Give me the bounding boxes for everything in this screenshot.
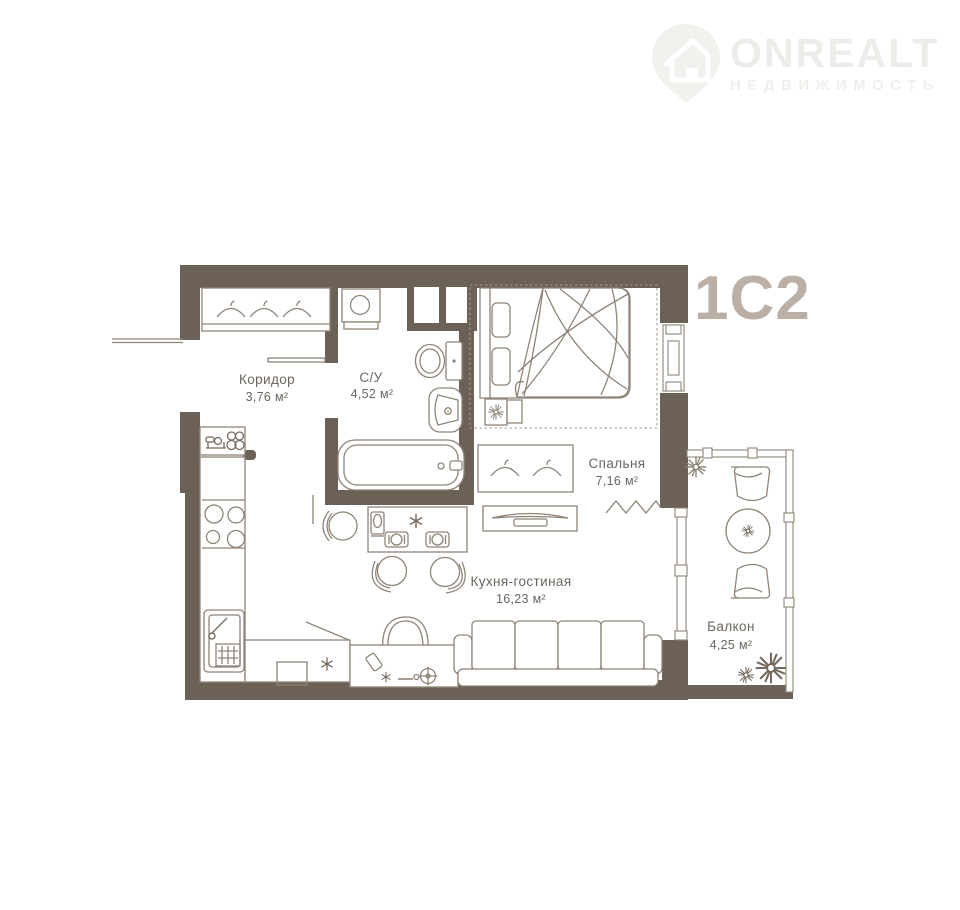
- closet-front-line: [268, 358, 325, 362]
- floorplan-page: ONREALT НЕДВИЖИМОСТЬ: [0, 0, 960, 910]
- bedroom-window: [660, 323, 688, 393]
- toilet: [416, 342, 463, 380]
- kitchen-sink: [204, 610, 244, 672]
- room-label-bedroom: Спальня: [588, 456, 645, 471]
- room-area-bedroom: 7,16 м²: [596, 474, 639, 488]
- bedside-stool: [485, 399, 522, 425]
- living-wardrobe: [478, 445, 573, 492]
- sofa: [454, 621, 662, 686]
- balcony-door: [675, 508, 687, 640]
- room-label-hallway: Коридор: [239, 372, 295, 387]
- room-area-hallway: 3,76 м²: [246, 390, 289, 404]
- room-label-kitchen-living: Кухня-гостиная: [470, 574, 571, 589]
- bathroom-sink: [429, 388, 462, 432]
- hallway-wardrobe: [202, 288, 330, 331]
- bathtub: [338, 440, 464, 490]
- room-area-kitchen-living: 16,23 м²: [496, 592, 546, 606]
- washing-machine: [342, 289, 380, 329]
- tv-stand: [483, 506, 577, 531]
- floor-plan: 1С2 Коридор 3,76 м² С/У 4,52 м² Спальня …: [0, 0, 960, 910]
- double-bed: [480, 288, 630, 398]
- shoe-rack: [200, 427, 245, 455]
- room-area-bathroom: 4,52 м²: [351, 387, 394, 401]
- radiator-zigzag: [606, 501, 661, 513]
- lower-counter: [245, 622, 350, 685]
- room-label-bathroom: С/У: [359, 370, 382, 385]
- dining-table: [368, 507, 467, 552]
- entrance-opening: [112, 339, 183, 343]
- desk: [350, 617, 458, 687]
- room-label-balcony: Балкон: [707, 619, 755, 634]
- unit-type-label: 1С2: [694, 264, 811, 333]
- room-area-balcony: 4,25 м²: [710, 638, 753, 652]
